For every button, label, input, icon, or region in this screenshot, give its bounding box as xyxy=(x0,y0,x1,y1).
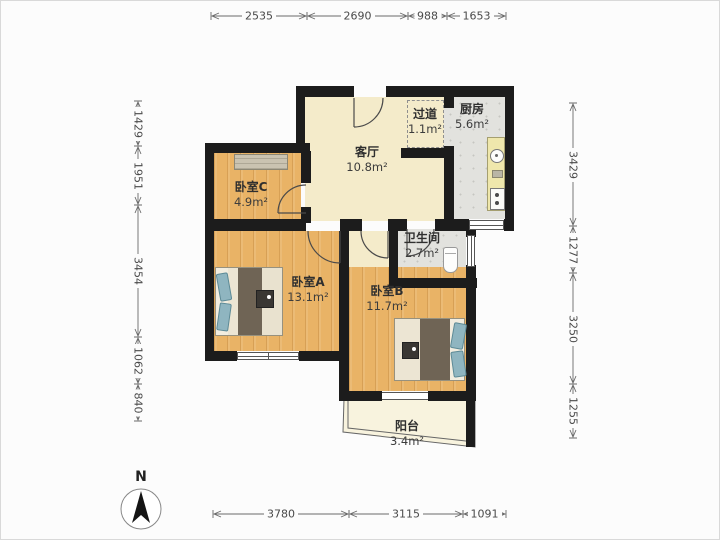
dimension-label-left-0: 1429 xyxy=(132,107,145,141)
room-name: 卧室C xyxy=(234,180,268,195)
room-label-bedroom-a: 卧室A 13.1m² xyxy=(287,275,328,304)
dimension-label-bottom-0: 3780 xyxy=(264,508,298,521)
room-label-bathroom: 卫生间 2.7m² xyxy=(404,231,440,260)
room-name: 阳台 xyxy=(390,419,424,434)
bedroom-b-door-icon xyxy=(361,231,388,258)
dimension-label-top-2: 988 xyxy=(414,10,441,23)
bedroom-a-door-icon xyxy=(308,231,340,263)
dimension-label-right-1: 1277 xyxy=(567,233,580,267)
floorplan-canvas: N 卧室C 4.9m² 客厅 10.8m² 过道 1.1m² 厨房 5.6m² … xyxy=(0,0,720,540)
annotations-layer xyxy=(1,1,720,540)
room-label-bedroom-b: 卧室B 11.7m² xyxy=(366,284,407,313)
room-name: 卧室B xyxy=(366,284,407,299)
bedroom-c-door-icon xyxy=(278,185,306,213)
dimension-label-left-1: 1951 xyxy=(132,159,145,193)
room-name: 过道 xyxy=(408,107,442,122)
room-area: 4.9m² xyxy=(234,195,268,209)
room-name: 厨房 xyxy=(455,102,489,117)
room-name: 卫生间 xyxy=(404,231,440,246)
dimension-label-right-2: 3250 xyxy=(567,312,580,346)
dimension-label-bottom-2: 1091 xyxy=(468,508,502,521)
room-label-corridor: 过道 1.1m² xyxy=(408,107,442,136)
room-area: 1.1m² xyxy=(408,122,442,136)
room-name: 卧室A xyxy=(287,275,328,290)
room-area: 10.8m² xyxy=(346,160,387,174)
room-area: 11.7m² xyxy=(366,299,407,313)
dimension-lines xyxy=(134,12,577,518)
compass-icon xyxy=(121,489,161,529)
entry-door-icon xyxy=(354,98,383,127)
room-area: 3.4m² xyxy=(390,434,424,448)
dimension-label-left-3: 1062 xyxy=(132,344,145,378)
dimension-label-left-2: 3454 xyxy=(132,254,145,288)
room-area: 5.6m² xyxy=(455,117,489,131)
dimension-label-bottom-1: 3115 xyxy=(389,508,423,521)
dimension-label-left-4: 840 xyxy=(132,389,145,416)
room-label-living-room: 客厅 10.8m² xyxy=(346,145,387,174)
room-label-kitchen: 厨房 5.6m² xyxy=(455,102,489,131)
room-label-balcony: 阳台 3.4m² xyxy=(390,419,424,448)
dimension-label-top-0: 2535 xyxy=(242,10,276,23)
compass-north-label: N xyxy=(135,469,147,485)
room-area: 2.7m² xyxy=(404,246,440,260)
dimension-label-right-3: 1255 xyxy=(567,394,580,428)
room-name: 客厅 xyxy=(346,145,387,160)
room-label-bedroom-c: 卧室C 4.9m² xyxy=(234,180,268,209)
dimension-label-top-1: 2690 xyxy=(341,10,375,23)
dimension-label-right-0: 3429 xyxy=(567,148,580,182)
dimension-label-top-3: 1653 xyxy=(460,10,494,23)
room-area: 13.1m² xyxy=(287,290,328,304)
